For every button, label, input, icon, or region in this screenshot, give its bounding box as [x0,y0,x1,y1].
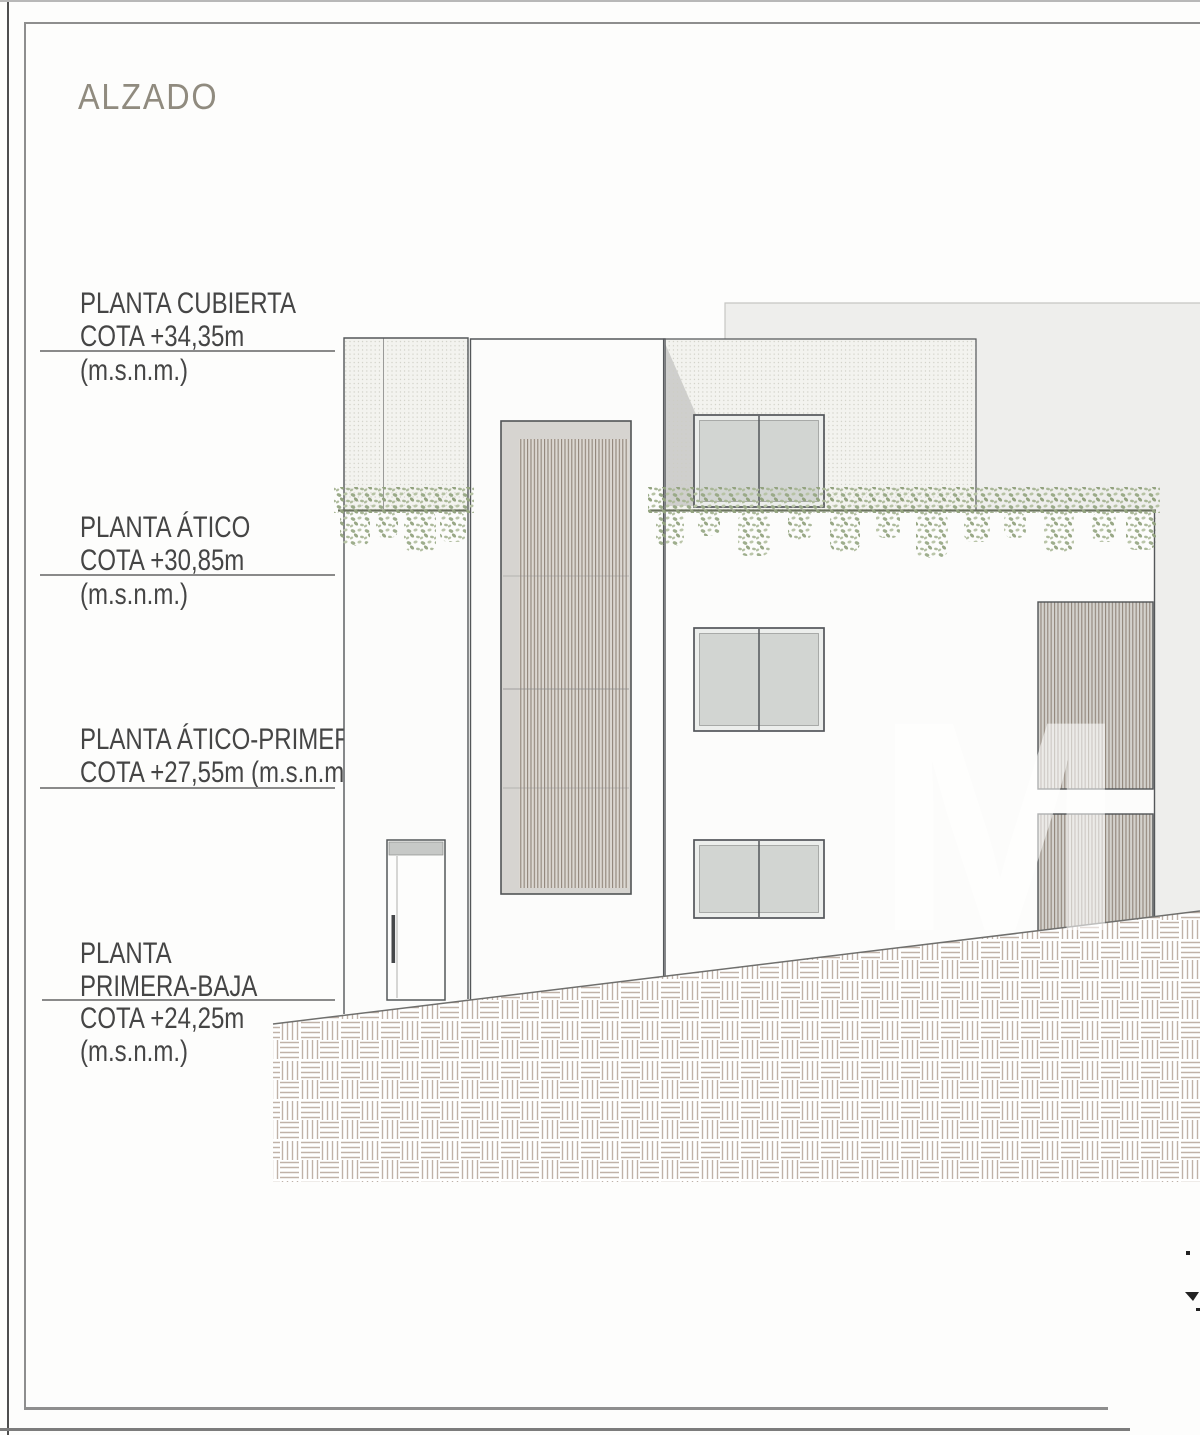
ink-specks [1185,1251,1200,1311]
central-louver-panel [501,421,631,894]
window-middle [694,628,824,731]
datum-lines [40,351,335,1000]
window-lower [694,840,824,918]
elevation-drawing: M [0,0,1200,1435]
door-header [389,842,443,855]
door-handle [392,915,396,963]
elevation-sheet: ALZADO PLANTA CUBIERTA COTA +34,35m (m.s… [0,0,1200,1435]
watermark: M [875,658,1125,994]
entrance-door [387,840,445,1000]
